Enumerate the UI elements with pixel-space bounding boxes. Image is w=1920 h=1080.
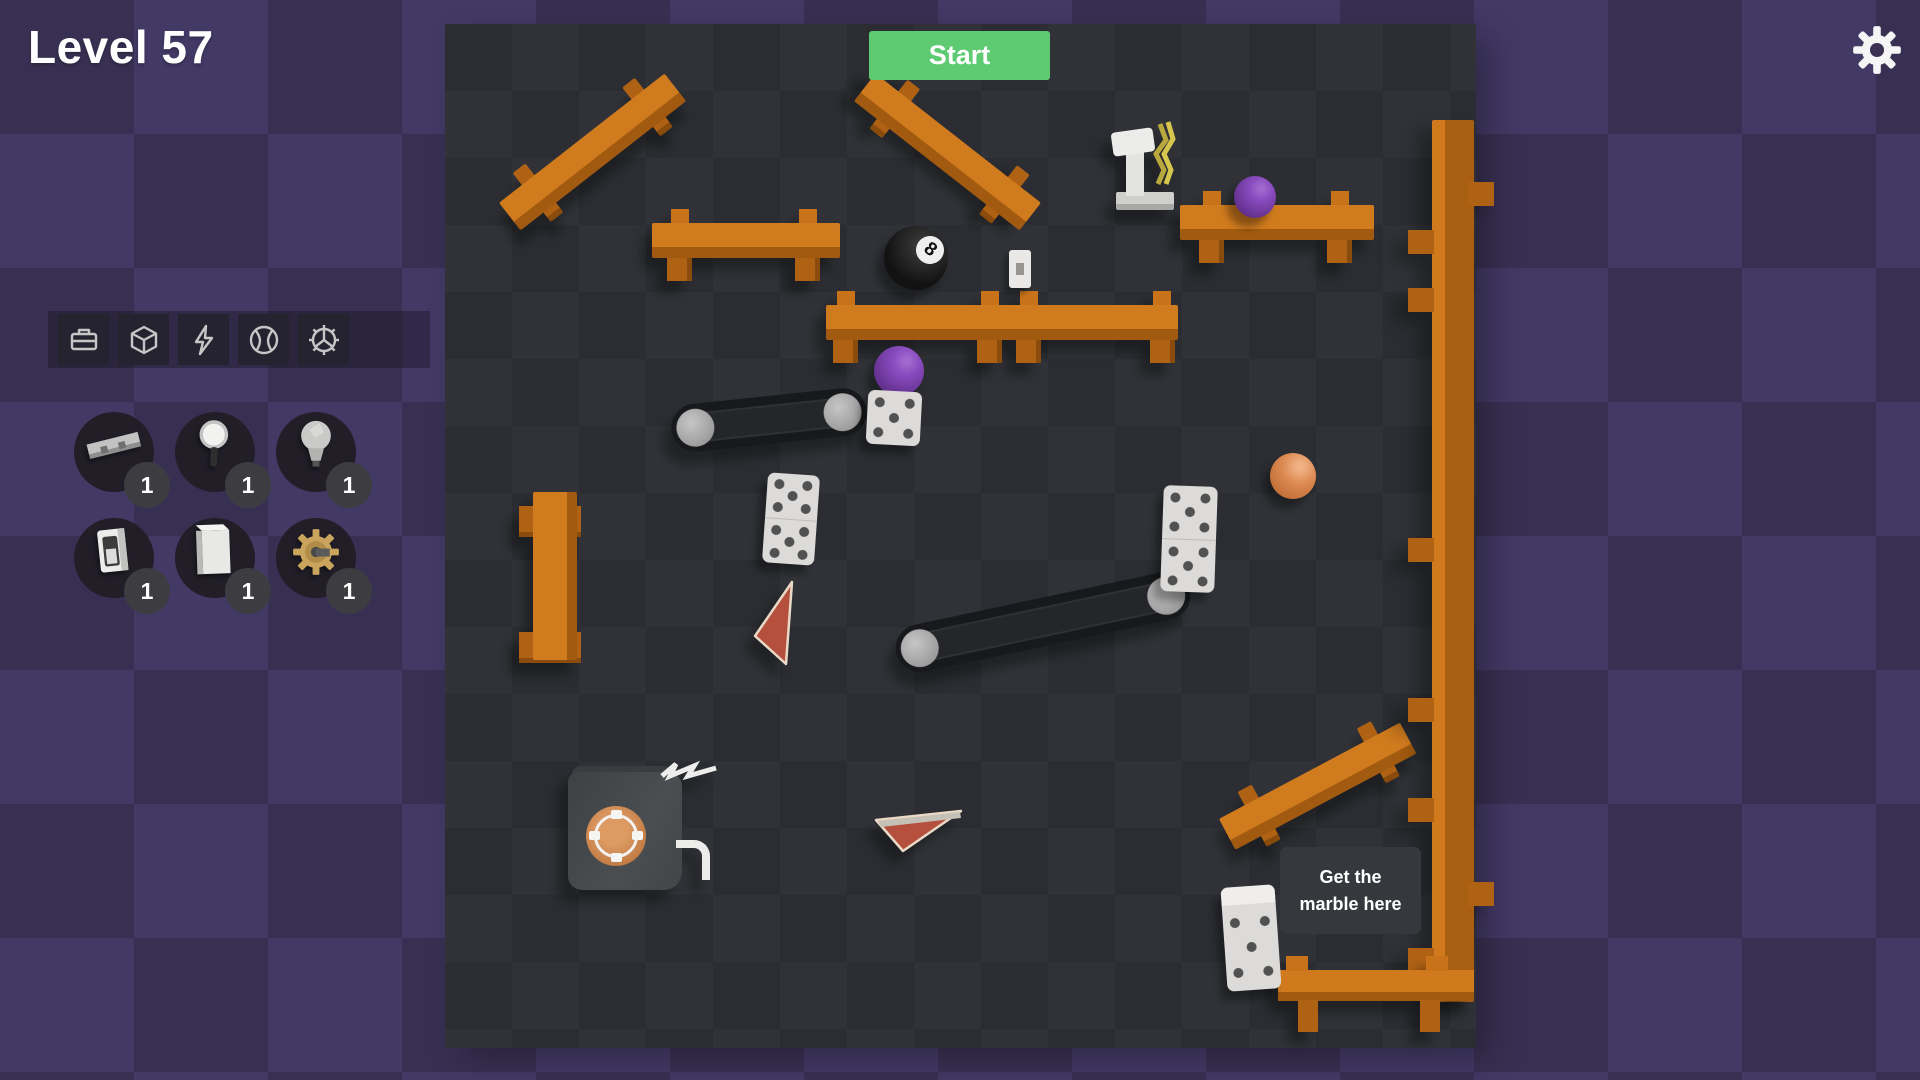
purple-marble-center: [874, 346, 924, 396]
lightning-icon: [187, 323, 221, 357]
tab-toolbox[interactable]: [58, 314, 109, 365]
goal-text-line1: Get the: [1319, 864, 1381, 890]
item-count-badge: 1: [225, 568, 271, 614]
shelf-peg: [1426, 956, 1448, 971]
inventory-item-book[interactable]: 1: [175, 518, 255, 598]
tab-ball[interactable]: [238, 314, 289, 365]
item-count-badge: 1: [225, 462, 271, 508]
domino-flat-2: [1160, 485, 1218, 593]
bench-peg: [671, 209, 689, 224]
wall-peg: [1408, 698, 1434, 722]
shelf-leg: [1420, 1000, 1440, 1032]
wooden-wall: [1432, 120, 1474, 1002]
wooden-bench-topmiddle: [848, 62, 1050, 239]
conveyor-belt-2: [891, 567, 1194, 676]
vertical-plank: [533, 492, 577, 660]
item-count-badge: 1: [326, 462, 372, 508]
red-ramp-bottom: [872, 806, 966, 854]
board-switch: [1009, 250, 1031, 288]
goal-label: Get the marble here: [1280, 847, 1421, 934]
item-count-badge: 1: [124, 568, 170, 614]
inventory-item-magnifier[interactable]: 1: [175, 412, 255, 492]
domino-half: [765, 472, 820, 521]
domino-half: [762, 517, 817, 567]
bench-plank: [854, 74, 1041, 231]
conveyor-belt-1: [669, 386, 869, 454]
inventory-item-seesaw[interactable]: 1: [74, 412, 154, 492]
bench-peg: [1020, 291, 1038, 306]
inventory-item-switch[interactable]: 1: [74, 518, 154, 598]
inventory-item-lightbulb[interactable]: 1: [276, 412, 356, 492]
gear-3d-icon: [307, 323, 341, 357]
item-count-badge: 1: [124, 462, 170, 508]
wall-peg: [1468, 882, 1494, 906]
pot-dispenser: [568, 772, 682, 890]
item-count-badge: 1: [326, 568, 372, 614]
wall-peg: [1468, 182, 1494, 206]
category-toolbar: [48, 311, 430, 368]
ball-icon: [247, 323, 281, 357]
bench-plank: [1180, 205, 1374, 240]
die-five: [866, 390, 923, 447]
bench-plank: [652, 223, 840, 258]
eight-ball-label: 8: [919, 238, 941, 262]
settings-gear-icon[interactable]: [1851, 24, 1903, 76]
plank-face: [533, 492, 577, 660]
bench-peg: [799, 209, 817, 224]
bench-peg: [1203, 191, 1221, 206]
bench-peg: [981, 291, 999, 306]
app-background: 8: [0, 0, 1920, 1080]
pot-hose: [676, 840, 710, 880]
wooden-bench-upper: [652, 208, 840, 288]
domino-half: [1160, 538, 1216, 594]
tab-gear[interactable]: [298, 314, 349, 365]
shelf-leg: [1298, 1000, 1318, 1032]
goal-text-line2: marble here: [1299, 891, 1401, 917]
domino-half: [1162, 485, 1218, 540]
hammer-device: [1108, 118, 1190, 220]
cube-icon: [127, 323, 161, 357]
tab-lightning[interactable]: [178, 314, 229, 365]
domino-standing: [1220, 884, 1281, 992]
start-button[interactable]: Start: [869, 31, 1050, 80]
red-ramp-left: [752, 579, 798, 667]
conveyor-band: [891, 567, 1194, 676]
tab-cube[interactable]: [118, 314, 169, 365]
bench-plank: [499, 74, 686, 231]
pot-emblem: [586, 806, 646, 866]
toolbox-icon: [67, 323, 101, 357]
wooden-bench-right: [1180, 190, 1374, 270]
shelf-peg: [1286, 956, 1308, 971]
wall-peg: [1408, 538, 1434, 562]
bench-peg: [1331, 191, 1349, 206]
eight-ball-number: 8: [910, 230, 949, 269]
pot-crank: [660, 756, 722, 786]
domino-flat-1: [762, 472, 820, 565]
wall-peg: [1408, 230, 1434, 254]
orange-ball: [1270, 453, 1316, 499]
bench-peg: [837, 291, 855, 306]
wall-peg: [1408, 288, 1434, 312]
wall-peg: [1408, 798, 1434, 822]
inventory-item-gear[interactable]: 1: [276, 518, 356, 598]
eight-ball: 8: [884, 226, 948, 290]
goal-shelf: [1278, 970, 1474, 1001]
purple-marble-shelf: [1234, 176, 1276, 218]
switch-toggle: [1016, 263, 1024, 275]
game-board[interactable]: 8: [445, 24, 1476, 1048]
bench-peg: [1153, 291, 1171, 306]
level-title: Level 57: [28, 20, 214, 74]
bench-plank: [826, 305, 1178, 340]
wooden-bench-bottomright: [1212, 709, 1421, 858]
